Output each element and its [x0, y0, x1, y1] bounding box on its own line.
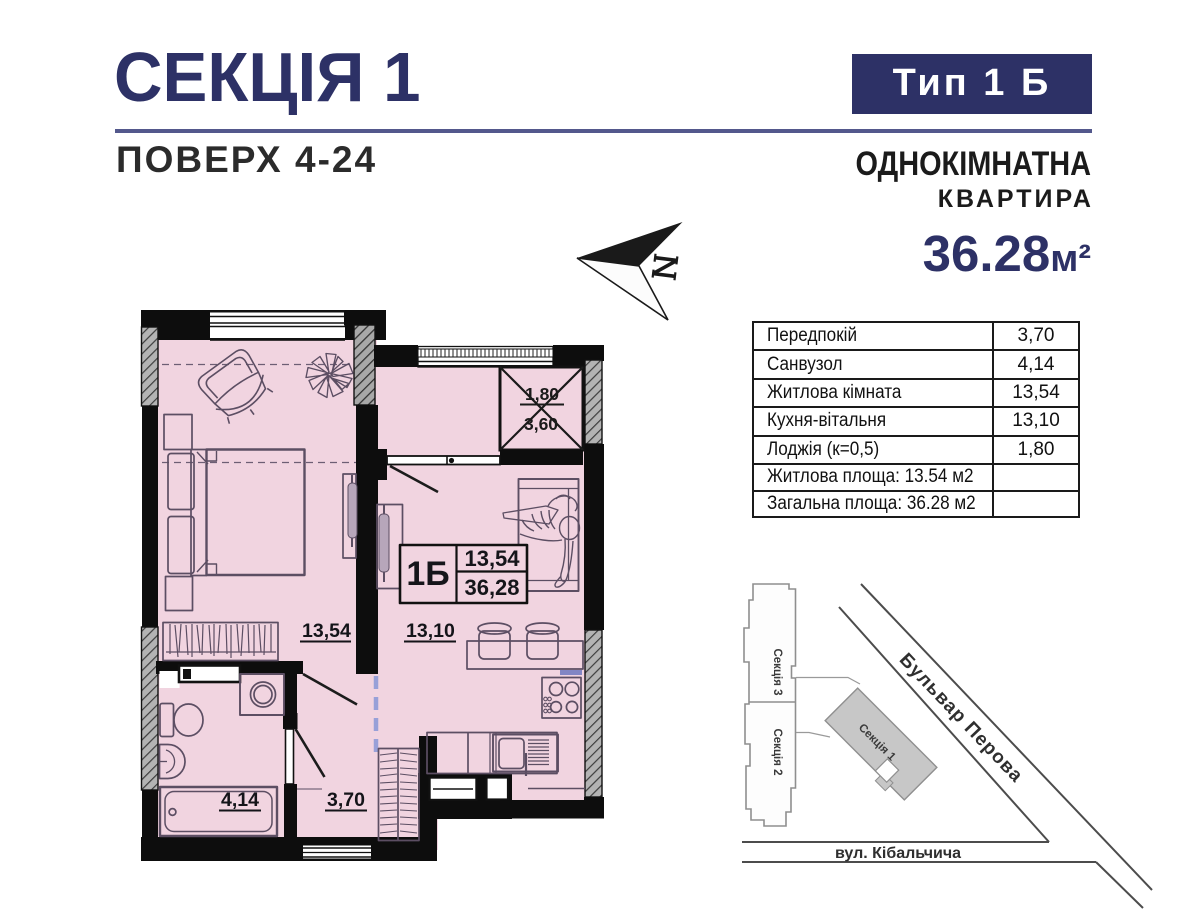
svg-text:Секція 3: Секція 3 — [771, 648, 783, 695]
svg-text:4,14: 4,14 — [221, 789, 259, 811]
svg-text:13,54: 13,54 — [302, 620, 351, 642]
svg-text:вул. Кібальчича: вул. Кібальчича — [835, 845, 961, 862]
svg-text:3,70: 3,70 — [327, 789, 365, 811]
svg-text:3,60: 3,60 — [524, 414, 558, 434]
svg-text:36,28: 36,28 — [464, 575, 519, 600]
svg-text:Секція 2: Секція 2 — [771, 728, 783, 775]
svg-text:13,10: 13,10 — [406, 620, 455, 642]
svg-text:1Б: 1Б — [406, 555, 449, 593]
svg-text:1,80: 1,80 — [525, 384, 559, 404]
svg-text:13,54: 13,54 — [464, 546, 520, 571]
